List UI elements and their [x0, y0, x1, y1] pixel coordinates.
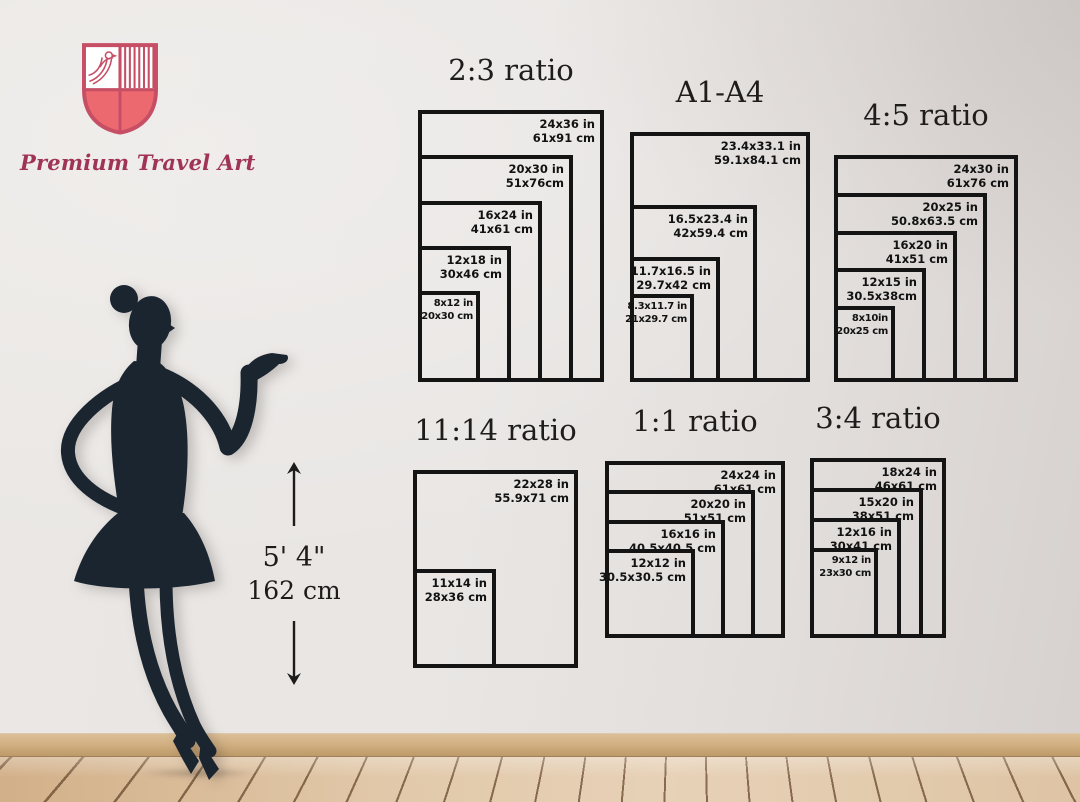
- size-label-inches: 24x30 in: [947, 162, 1009, 176]
- arrow-up-icon: [283, 462, 305, 528]
- group-title: 3:4 ratio: [815, 401, 940, 435]
- size-label: 16x20 in41x51 cm: [886, 238, 948, 267]
- group-title: 4:5 ratio: [863, 98, 988, 132]
- arrow-down-icon: [283, 619, 305, 685]
- size-label-cm: 59.1x84.1 cm: [714, 153, 801, 167]
- size-label: 23.4x33.1 in59.1x84.1 cm: [714, 139, 801, 168]
- size-label-cm: 41x51 cm: [886, 252, 948, 266]
- size-label-inches: 8x10in: [836, 313, 888, 326]
- size-group-ratio-4-5: 4:5 ratio24x30 in61x76 cm20x25 in50.8x63…: [834, 98, 1018, 382]
- size-box: 8.3x11.7 in21x29.7 cm: [630, 294, 694, 382]
- size-label: 12x12 in30.5x30.5 cm: [599, 556, 686, 585]
- size-label: 8x10in20x25 cm: [836, 313, 888, 338]
- group-title: 1:1 ratio: [632, 404, 757, 438]
- size-label-inches: 16.5x23.4 in: [668, 212, 748, 226]
- size-group-ratio-11-14: 11:14 ratio22x28 in55.9x71 cm11x14 in28x…: [413, 413, 578, 668]
- size-label-inches: 18x24 in: [875, 465, 937, 479]
- size-label: 24x30 in61x76 cm: [947, 162, 1009, 191]
- size-box: 11x14 in28x36 cm: [413, 569, 496, 668]
- size-label-inches: 15x20 in: [852, 495, 914, 509]
- size-box: 12x12 in30.5x30.5 cm: [605, 549, 695, 638]
- height-imperial: 5' 4": [242, 542, 346, 573]
- size-label-inches: 20x30 in: [506, 162, 564, 176]
- size-label-inches: 24x36 in: [533, 117, 595, 131]
- brand-logo: Premium Travel Art: [20, 40, 220, 175]
- size-label-inches: 8x12 in: [421, 298, 473, 311]
- size-label-cm: 41x61 cm: [471, 222, 533, 236]
- size-label-cm: 20x25 cm: [836, 326, 888, 339]
- size-label: 12x18 in30x46 cm: [440, 253, 502, 282]
- size-label: 20x30 in51x76cm: [506, 162, 564, 191]
- size-label-inches: 11x14 in: [425, 576, 487, 590]
- size-label-inches: 20x20 in: [684, 497, 746, 511]
- size-group-ratio-3-4: 3:4 ratio18x24 in46x61 cm15x20 in38x51 c…: [810, 401, 946, 638]
- size-label-inches: 12x12 in: [599, 556, 686, 570]
- size-label-inches: 12x16 in: [830, 525, 892, 539]
- height-metric: 162 cm: [242, 576, 346, 605]
- group-title: 2:3 ratio: [448, 53, 573, 87]
- size-label-cm: 28x36 cm: [425, 590, 487, 604]
- size-label-inches: 16x16 in: [629, 527, 716, 541]
- brand-name: Premium Travel Art: [20, 150, 220, 175]
- size-label-inches: 12x15 in: [846, 275, 917, 289]
- size-label-cm: 23x30 cm: [819, 568, 871, 581]
- size-label: 12x15 in30.5x38cm: [846, 275, 917, 304]
- size-label-cm: 61x91 cm: [533, 131, 595, 145]
- shield-crest-icon: [76, 40, 164, 136]
- size-label: 16.5x23.4 in42x59.4 cm: [668, 212, 748, 241]
- size-label-inches: 12x18 in: [440, 253, 502, 267]
- size-label: 20x25 in50.8x63.5 cm: [891, 200, 978, 229]
- size-label-cm: 42x59.4 cm: [668, 226, 748, 240]
- size-label-inches: 8.3x11.7 in: [625, 301, 687, 314]
- size-label-cm: 55.9x71 cm: [494, 491, 569, 505]
- size-label-cm: 20x30 cm: [421, 311, 473, 324]
- size-label-inches: 23.4x33.1 in: [714, 139, 801, 153]
- size-label-cm: 50.8x63.5 cm: [891, 214, 978, 228]
- size-chart-poster: Premium Travel Art 5' 4" 16: [0, 0, 1080, 802]
- size-box: 8x10in20x25 cm: [834, 306, 895, 382]
- size-label: 24x36 in61x91 cm: [533, 117, 595, 146]
- size-label-cm: 51x76cm: [506, 176, 564, 190]
- size-label: 8x12 in20x30 cm: [421, 298, 473, 323]
- size-label: 8.3x11.7 in21x29.7 cm: [625, 301, 687, 326]
- size-label-inches: 16x24 in: [471, 208, 533, 222]
- group-title: 11:14 ratio: [414, 413, 576, 447]
- size-label-cm: 61x76 cm: [947, 176, 1009, 190]
- size-label-inches: 24x24 in: [714, 468, 776, 482]
- size-label-inches: 22x28 in: [494, 477, 569, 491]
- size-label: 11.7x16.5 in29.7x42 cm: [631, 264, 711, 293]
- size-label-inches: 16x20 in: [886, 238, 948, 252]
- size-label: 11x14 in28x36 cm: [425, 576, 487, 605]
- size-group-ratio-2-3: 2:3 ratio24x36 in61x91 cm20x30 in51x76cm…: [418, 53, 604, 382]
- size-label: 9x12 in23x30 cm: [819, 555, 871, 580]
- size-label-cm: 21x29.7 cm: [625, 314, 687, 327]
- size-group-a1-a4: A1-A423.4x33.1 in59.1x84.1 cm16.5x23.4 i…: [630, 75, 810, 382]
- size-label-inches: 9x12 in: [819, 555, 871, 568]
- size-label: 16x24 in41x61 cm: [471, 208, 533, 237]
- size-box: 9x12 in23x30 cm: [810, 548, 878, 638]
- size-label-cm: 30x46 cm: [440, 267, 502, 281]
- size-label-cm: 30.5x38cm: [846, 289, 917, 303]
- height-reference: 5' 4" 162 cm: [242, 462, 346, 685]
- size-label-inches: 11.7x16.5 in: [631, 264, 711, 278]
- group-title: A1-A4: [676, 75, 765, 109]
- size-group-ratio-1-1: 1:1 ratio24x24 in61x61 cm20x20 in51x51 c…: [605, 404, 785, 638]
- size-box: 8x12 in20x30 cm: [418, 291, 480, 382]
- size-label-cm: 29.7x42 cm: [631, 278, 711, 292]
- size-label-cm: 30.5x30.5 cm: [599, 570, 686, 584]
- size-label: 22x28 in55.9x71 cm: [494, 477, 569, 506]
- size-label-inches: 20x25 in: [891, 200, 978, 214]
